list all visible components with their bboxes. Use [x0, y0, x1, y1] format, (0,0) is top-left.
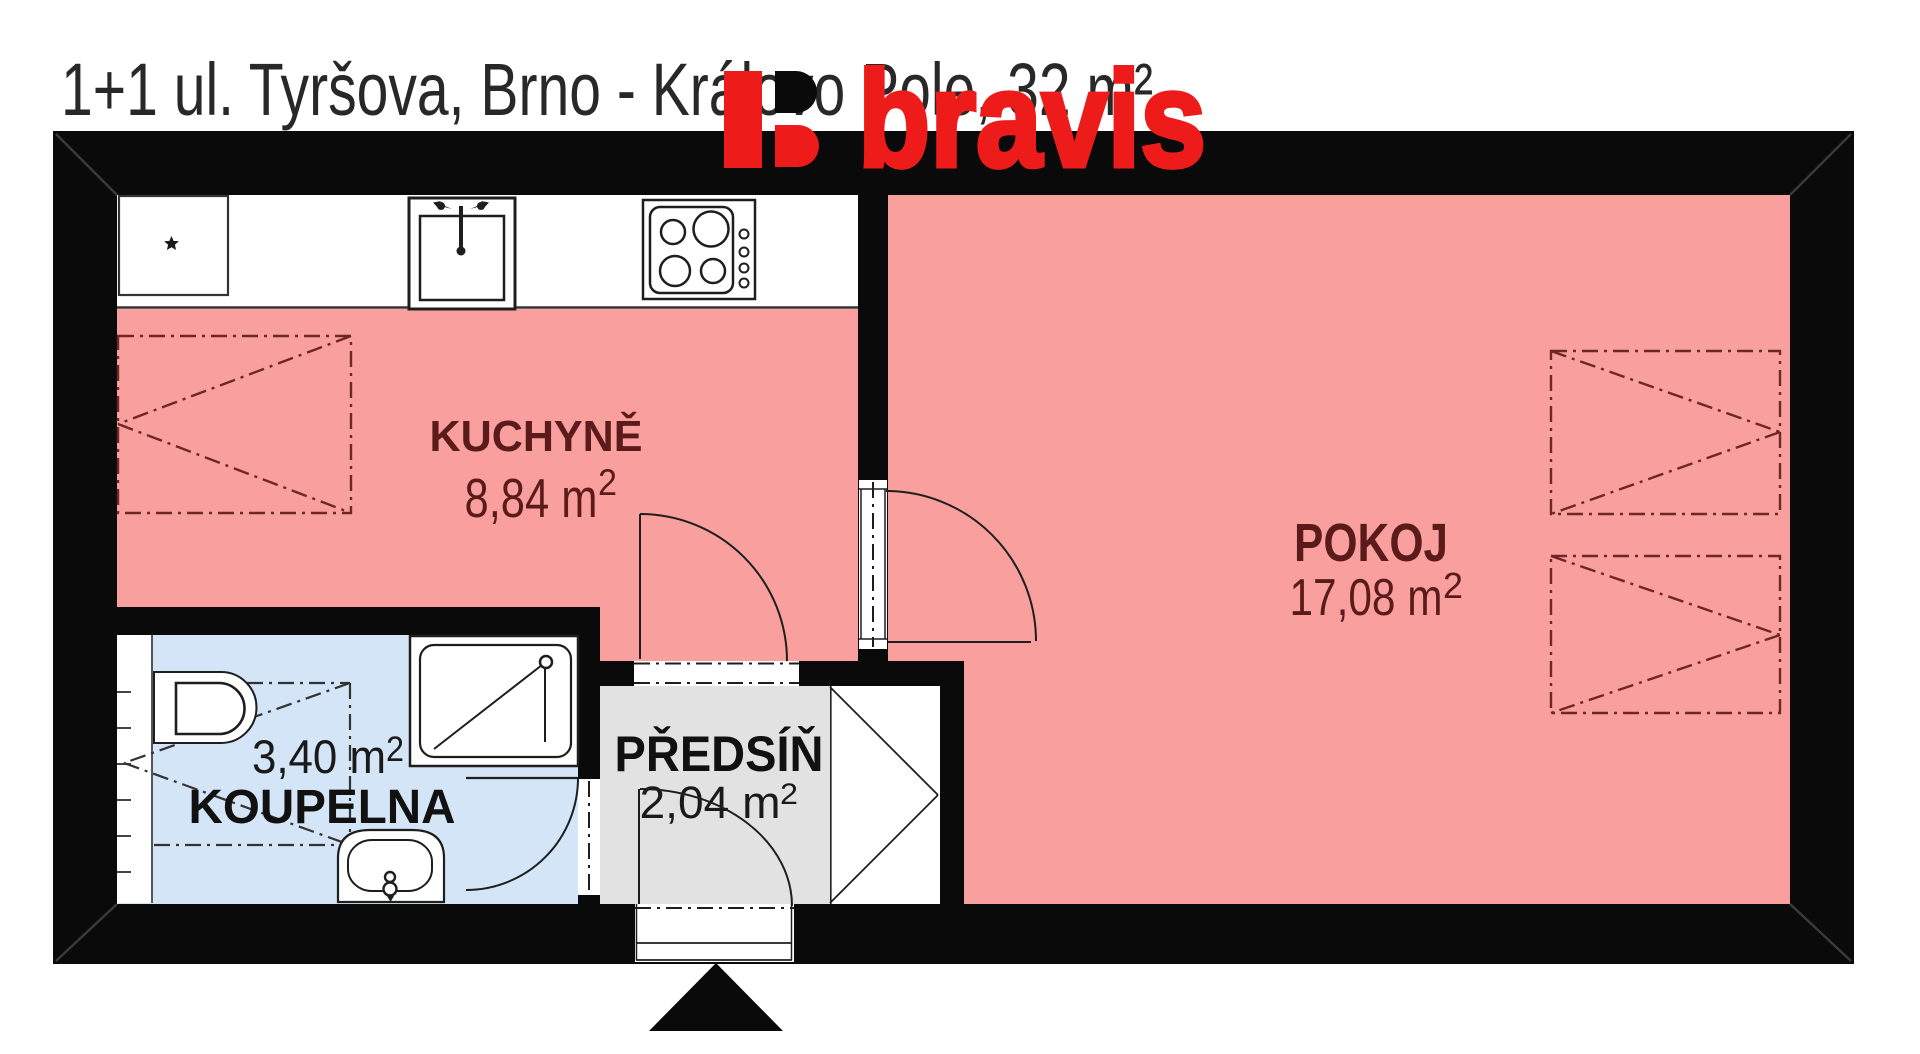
- svg-text:2: 2: [780, 778, 798, 811]
- svg-text:2: 2: [598, 462, 617, 503]
- svg-text:3,40 m: 3,40 m: [252, 730, 386, 783]
- svg-text:bravis: bravis: [858, 43, 1206, 195]
- svg-text:KUCHYNĚ: KUCHYNĚ: [430, 411, 643, 461]
- svg-text:PŘEDSÍŇ: PŘEDSÍŇ: [615, 726, 824, 782]
- svg-text:17,08 m: 17,08 m: [1290, 569, 1443, 627]
- svg-text:2: 2: [386, 730, 404, 769]
- svg-text:POKOJ: POKOJ: [1294, 513, 1448, 573]
- svg-text:2: 2: [1443, 565, 1463, 606]
- svg-text:KOUPELNA: KOUPELNA: [189, 781, 456, 834]
- svg-text:8,84 m: 8,84 m: [465, 467, 598, 529]
